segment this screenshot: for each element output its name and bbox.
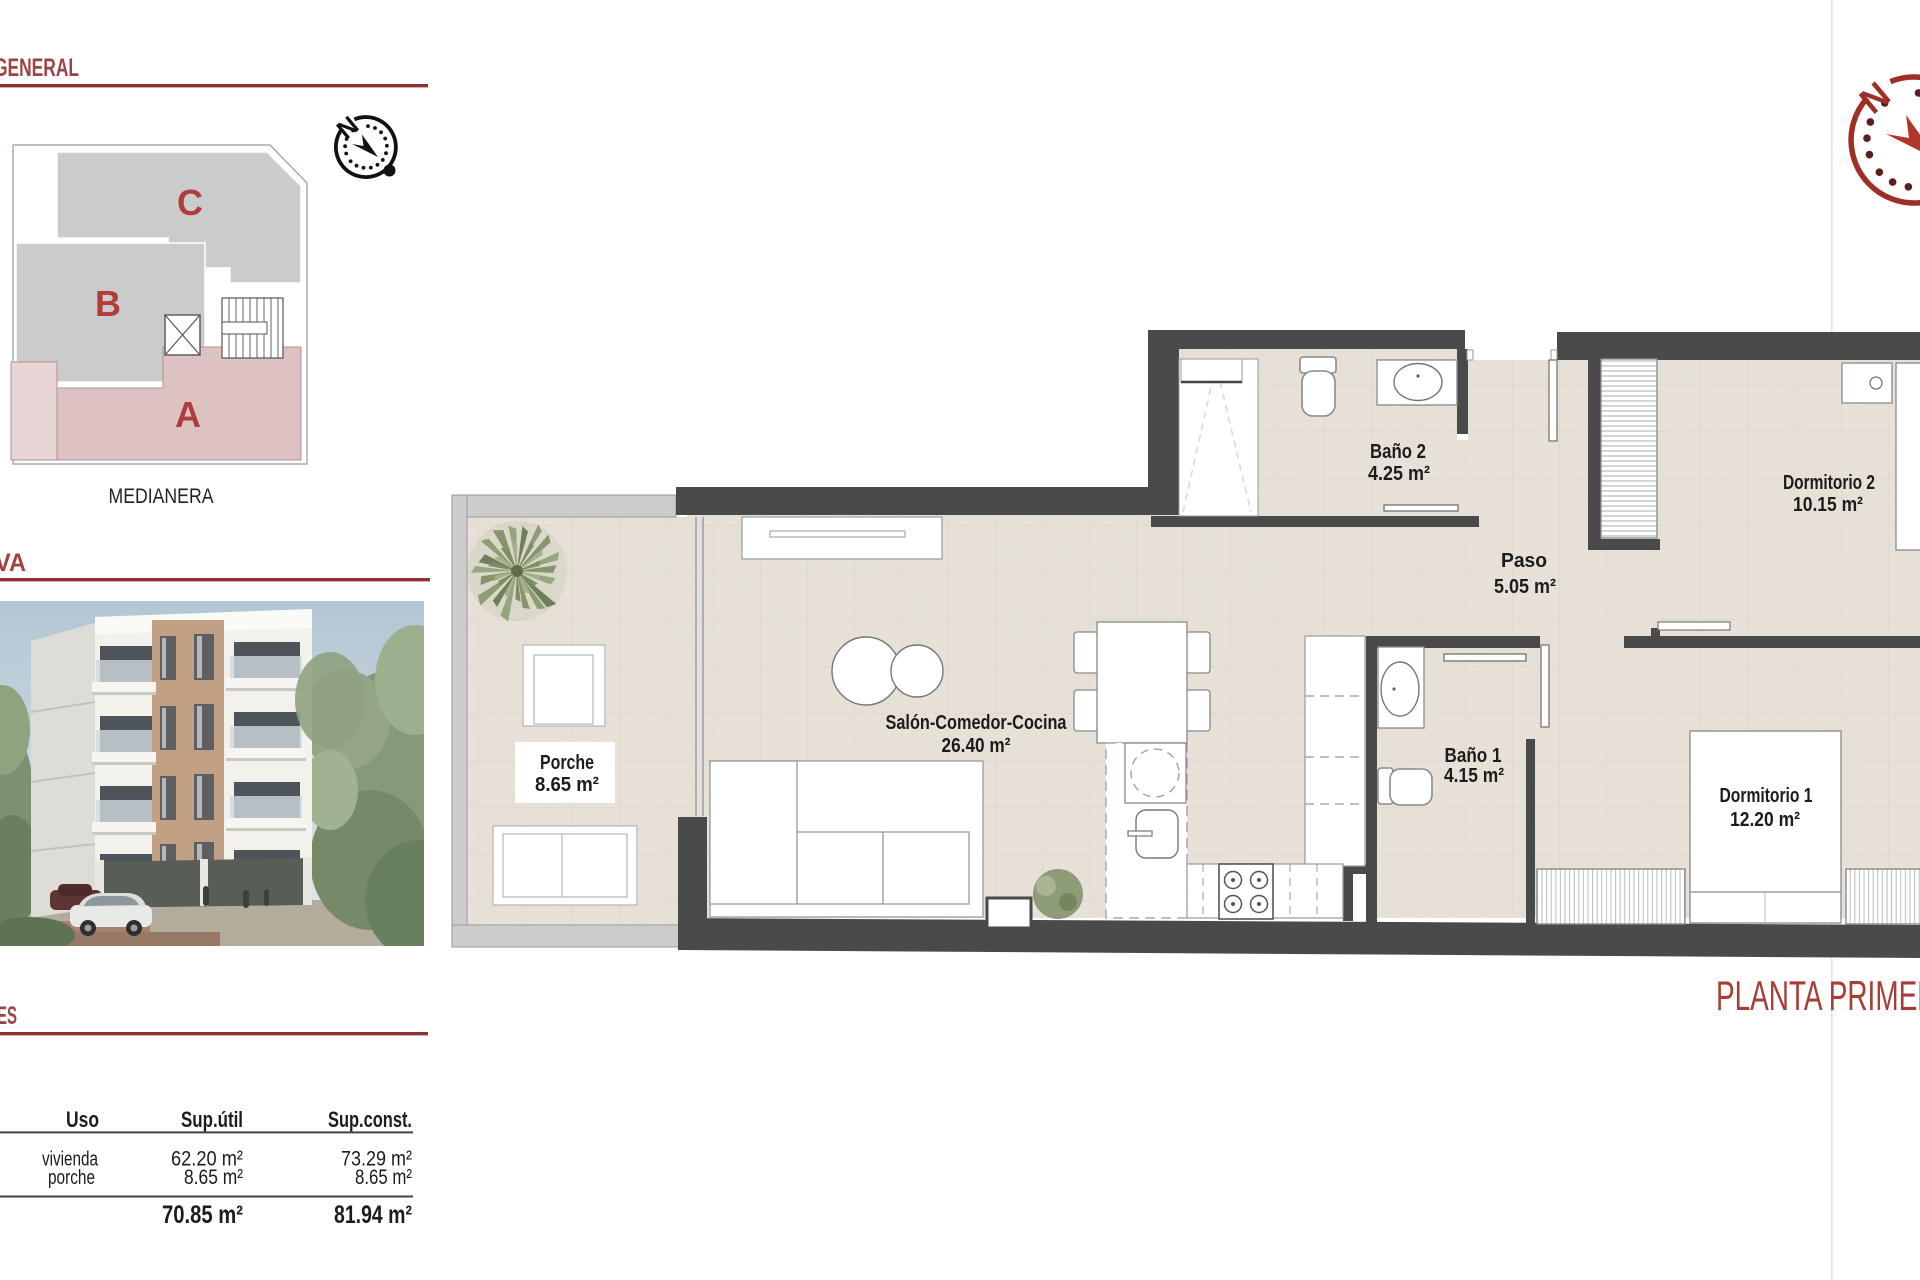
svg-text:12.20 m²: 12.20 m²	[1730, 809, 1800, 831]
svg-text:Salón-Comedor-Cocina: Salón-Comedor-Cocina	[886, 712, 1068, 734]
svg-text:Sup.útil: Sup.útil	[181, 1107, 243, 1132]
svg-text:MEDIANERA: MEDIANERA	[109, 485, 214, 508]
svg-text:8.65 m²: 8.65 m²	[535, 774, 599, 796]
svg-text:VA: VA	[0, 549, 26, 577]
svg-text:porche: porche	[48, 1167, 95, 1189]
svg-text:81.94 m²: 81.94 m²	[334, 1201, 412, 1229]
svg-text:ES: ES	[0, 1002, 17, 1030]
svg-text:C: C	[177, 182, 203, 223]
svg-text:B: B	[95, 283, 121, 324]
svg-text:Sup.const.: Sup.const.	[328, 1107, 412, 1132]
svg-text:70.85 m²: 70.85 m²	[162, 1201, 243, 1229]
svg-text:5.05 m²: 5.05 m²	[1494, 576, 1556, 598]
svg-text:PLANTA PRIMERA: PLANTA PRIMERA	[1716, 972, 1920, 1019]
svg-text:26.40 m²: 26.40 m²	[942, 735, 1011, 757]
svg-text:Dormitorio 2: Dormitorio 2	[1783, 472, 1875, 494]
svg-text:8.65 m²: 8.65 m²	[355, 1166, 412, 1189]
svg-text:Paso: Paso	[1501, 550, 1547, 572]
svg-text:10.15 m²: 10.15 m²	[1793, 494, 1863, 516]
svg-text:GENERAL: GENERAL	[0, 54, 79, 82]
svg-text:Uso: Uso	[66, 1107, 99, 1132]
svg-text:Dormitorio 1: Dormitorio 1	[1720, 785, 1813, 807]
svg-text:Baño 1: Baño 1	[1445, 745, 1502, 767]
svg-text:4.25 m²: 4.25 m²	[1368, 463, 1430, 485]
svg-text:Porche: Porche	[540, 752, 594, 774]
svg-text:Baño 2: Baño 2	[1370, 441, 1426, 463]
svg-text:8.65 m²: 8.65 m²	[184, 1166, 243, 1189]
svg-text:A: A	[175, 394, 201, 435]
svg-text:4.15 m²: 4.15 m²	[1444, 765, 1504, 787]
